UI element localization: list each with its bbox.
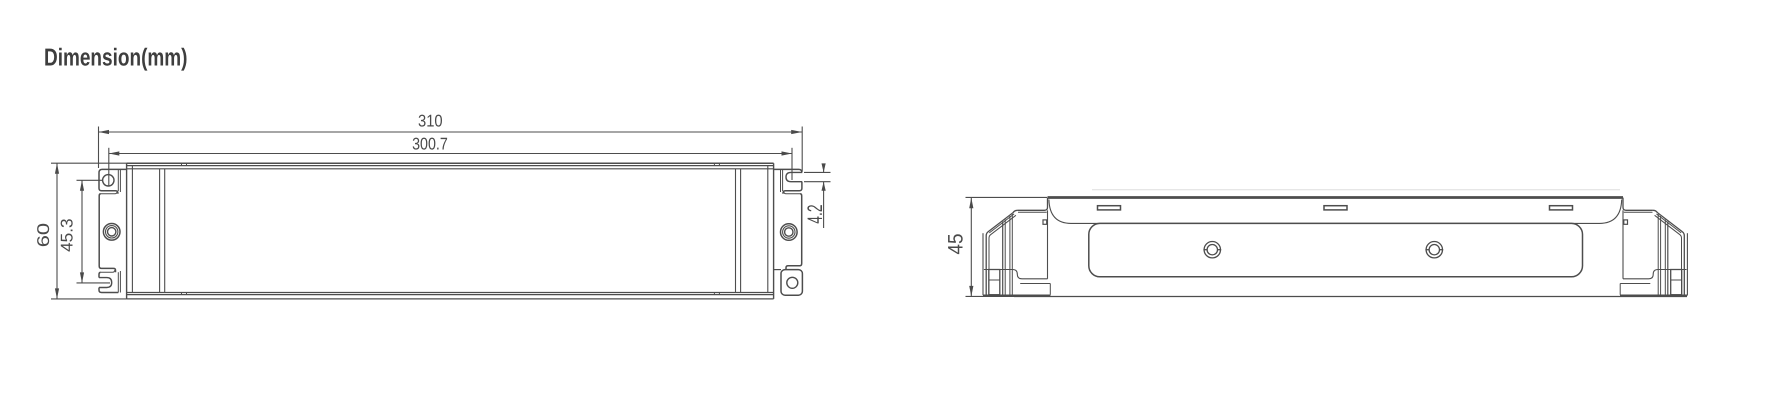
svg-text:300.7: 300.7 [412, 134, 448, 153]
svg-text:4.2: 4.2 [804, 205, 827, 224]
svg-text:60: 60 [34, 223, 53, 247]
svg-text:310: 310 [418, 111, 443, 130]
svg-text:Dimension(mm): Dimension(mm) [44, 44, 188, 71]
svg-text:45: 45 [944, 234, 967, 255]
svg-text:45.3: 45.3 [58, 219, 77, 252]
